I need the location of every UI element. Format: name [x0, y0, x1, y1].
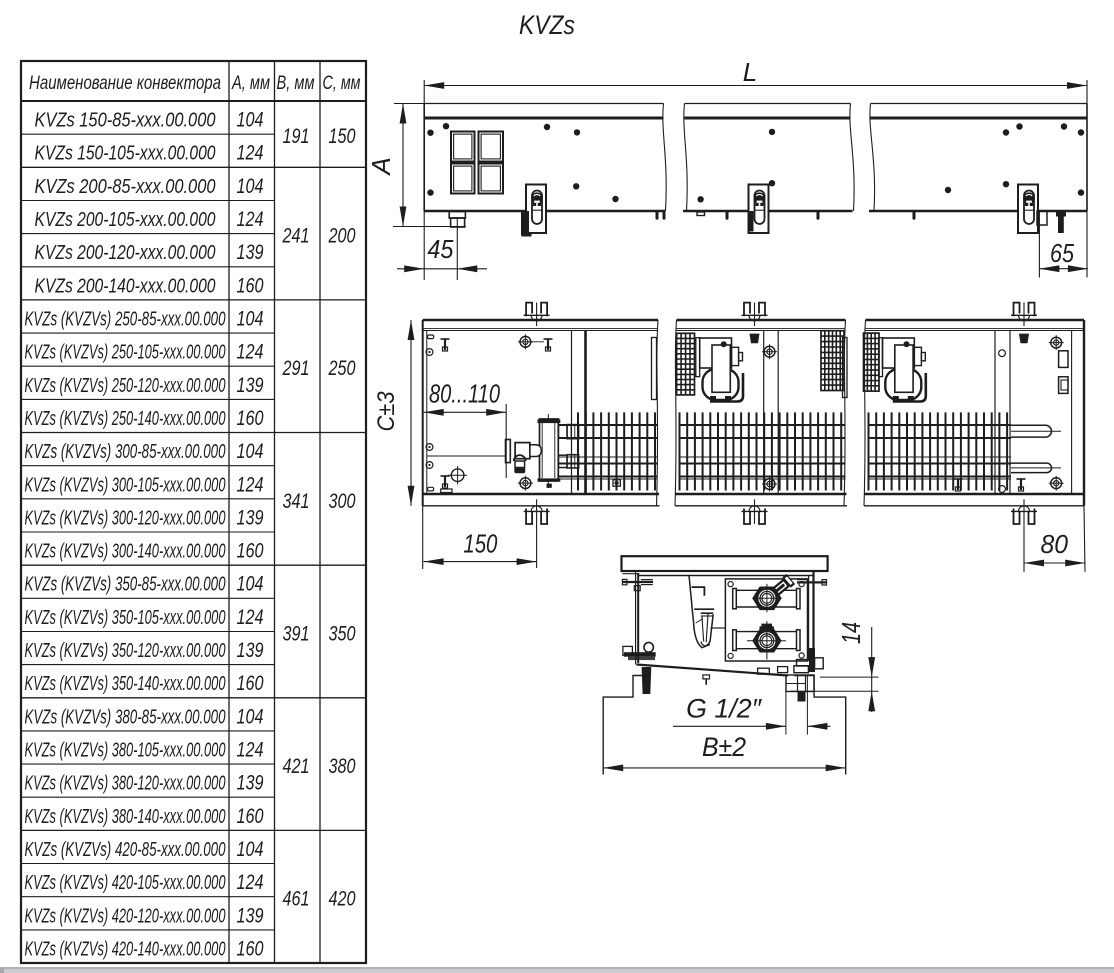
- svg-text:150: 150: [463, 529, 497, 559]
- svg-text:104: 104: [237, 573, 264, 596]
- svg-text:250: 250: [328, 357, 356, 380]
- svg-text:80: 80: [1041, 529, 1069, 559]
- svg-text:104: 104: [237, 838, 264, 861]
- svg-text:KVZs (KVZVs) 300-85-xxx.00.000: KVZs (KVZVs) 300-85-xxx.00.000: [25, 441, 226, 463]
- svg-text:139: 139: [237, 639, 264, 662]
- svg-text:С, мм: С, мм: [323, 73, 361, 94]
- svg-text:A: A: [366, 157, 396, 176]
- svg-text:KVZs 200-140-xxx.00.000: KVZs 200-140-xxx.00.000: [35, 275, 216, 297]
- svg-text:104: 104: [237, 175, 264, 198]
- svg-text:461: 461: [283, 888, 310, 911]
- svg-text:104: 104: [237, 308, 264, 331]
- svg-text:KVZs (KVZVs) 420-140-xxx.00.00: KVZs (KVZVs) 420-140-xxx.00.000: [25, 938, 226, 960]
- svg-text:160: 160: [237, 540, 264, 563]
- svg-text:KVZs 150-105-xxx.00.000: KVZs 150-105-xxx.00.000: [35, 143, 216, 165]
- svg-text:160: 160: [237, 672, 264, 695]
- svg-text:С±3: С±3: [373, 391, 400, 432]
- svg-text:124: 124: [237, 739, 264, 762]
- svg-text:300: 300: [329, 490, 356, 513]
- svg-text:160: 160: [237, 937, 264, 960]
- svg-text:124: 124: [237, 871, 264, 894]
- svg-text:139: 139: [237, 904, 264, 927]
- svg-text:KVZs (KVZVs) 380-140-xxx.00.00: KVZs (KVZVs) 380-140-xxx.00.000: [25, 806, 226, 828]
- svg-text:104: 104: [237, 109, 264, 132]
- svg-text:80...110: 80...110: [429, 379, 500, 409]
- svg-text:KVZs (KVZVs) 250-105-xxx.00.00: KVZs (KVZVs) 250-105-xxx.00.000: [25, 342, 226, 364]
- svg-text:139: 139: [237, 772, 264, 795]
- svg-text:14: 14: [836, 622, 866, 644]
- svg-text:KVZs (KVZVs) 350-85-xxx.00.000: KVZs (KVZVs) 350-85-xxx.00.000: [25, 574, 226, 596]
- svg-text:KVZs (KVZVs) 420-85-xxx.00.000: KVZs (KVZVs) 420-85-xxx.00.000: [25, 839, 226, 861]
- svg-text:124: 124: [237, 208, 264, 231]
- svg-text:124: 124: [237, 473, 264, 496]
- svg-text:KVZs (KVZVs) 300-120-xxx.00.00: KVZs (KVZVs) 300-120-xxx.00.000: [25, 507, 226, 529]
- svg-text:139: 139: [237, 241, 264, 264]
- svg-text:KVZs (KVZVs) 380-120-xxx.00.00: KVZs (KVZVs) 380-120-xxx.00.000: [25, 773, 226, 795]
- svg-text:KVZs (KVZVs) 350-105-xxx.00.00: KVZs (KVZVs) 350-105-xxx.00.000: [25, 607, 226, 629]
- svg-text:G 1/2″: G 1/2″: [686, 694, 762, 724]
- svg-text:KVZs 200-120-xxx.00.000: KVZs 200-120-xxx.00.000: [35, 242, 216, 264]
- svg-text:191: 191: [283, 125, 310, 148]
- svg-text:65: 65: [1050, 238, 1074, 268]
- svg-text:KVZs (KVZVs) 380-105-xxx.00.00: KVZs (KVZVs) 380-105-xxx.00.000: [25, 740, 226, 762]
- svg-text:KVZs: KVZs: [519, 10, 575, 40]
- svg-text:KVZs (KVZVs) 350-140-xxx.00.00: KVZs (KVZVs) 350-140-xxx.00.000: [25, 673, 226, 695]
- svg-text:KVZs (KVZVs) 350-120-xxx.00.00: KVZs (KVZVs) 350-120-xxx.00.000: [25, 640, 226, 662]
- svg-text:350: 350: [329, 623, 356, 646]
- svg-text:Наименование конвектора: Наименование конвектора: [29, 73, 221, 94]
- svg-text:124: 124: [237, 142, 264, 165]
- svg-text:KVZs 200-105-xxx.00.000: KVZs 200-105-xxx.00.000: [35, 209, 216, 231]
- svg-text:200: 200: [328, 225, 356, 248]
- svg-text:KVZs (KVZVs) 250-120-xxx.00.00: KVZs (KVZVs) 250-120-xxx.00.000: [25, 375, 226, 397]
- svg-text:KVZs 200-85-xxx.00.000: KVZs 200-85-xxx.00.000: [35, 176, 216, 198]
- svg-text:B±2: B±2: [702, 732, 746, 762]
- svg-text:В, мм: В, мм: [277, 73, 315, 94]
- svg-text:160: 160: [237, 805, 264, 828]
- svg-text:139: 139: [237, 506, 264, 529]
- svg-text:L: L: [743, 57, 757, 87]
- svg-text:45: 45: [427, 234, 453, 264]
- svg-text:160: 160: [237, 274, 264, 297]
- svg-text:124: 124: [237, 606, 264, 629]
- svg-text:391: 391: [283, 623, 310, 646]
- svg-text:124: 124: [237, 341, 264, 364]
- svg-text:104: 104: [237, 440, 264, 463]
- svg-text:KVZs (KVZVs) 250-85-xxx.00.000: KVZs (KVZVs) 250-85-xxx.00.000: [25, 309, 226, 331]
- svg-text:KVZs (KVZVs) 300-140-xxx.00.00: KVZs (KVZVs) 300-140-xxx.00.000: [25, 541, 226, 563]
- svg-text:KVZs (KVZVs) 380-85-xxx.00.000: KVZs (KVZVs) 380-85-xxx.00.000: [25, 706, 226, 728]
- svg-text:341: 341: [283, 490, 310, 513]
- svg-text:А, мм: А, мм: [231, 73, 270, 94]
- svg-text:420: 420: [329, 888, 356, 911]
- svg-text:KVZs (KVZVs) 420-120-xxx.00.00: KVZs (KVZVs) 420-120-xxx.00.000: [25, 905, 226, 927]
- svg-text:150: 150: [329, 125, 356, 148]
- svg-text:104: 104: [237, 705, 264, 728]
- svg-text:380: 380: [329, 755, 356, 778]
- svg-text:139: 139: [237, 374, 264, 397]
- svg-text:421: 421: [283, 755, 310, 778]
- svg-text:241: 241: [282, 225, 310, 248]
- svg-text:160: 160: [237, 407, 264, 430]
- svg-text:KVZs (KVZVs) 250-140-xxx.00.00: KVZs (KVZVs) 250-140-xxx.00.000: [25, 408, 226, 430]
- svg-text:KVZs (KVZVs) 420-105-xxx.00.00: KVZs (KVZVs) 420-105-xxx.00.000: [25, 872, 226, 894]
- svg-text:291: 291: [282, 357, 310, 380]
- svg-text:KVZs 150-85-xxx.00.000: KVZs 150-85-xxx.00.000: [35, 110, 216, 132]
- svg-text:KVZs (KVZVs) 300-105-xxx.00.00: KVZs (KVZVs) 300-105-xxx.00.000: [25, 474, 226, 496]
